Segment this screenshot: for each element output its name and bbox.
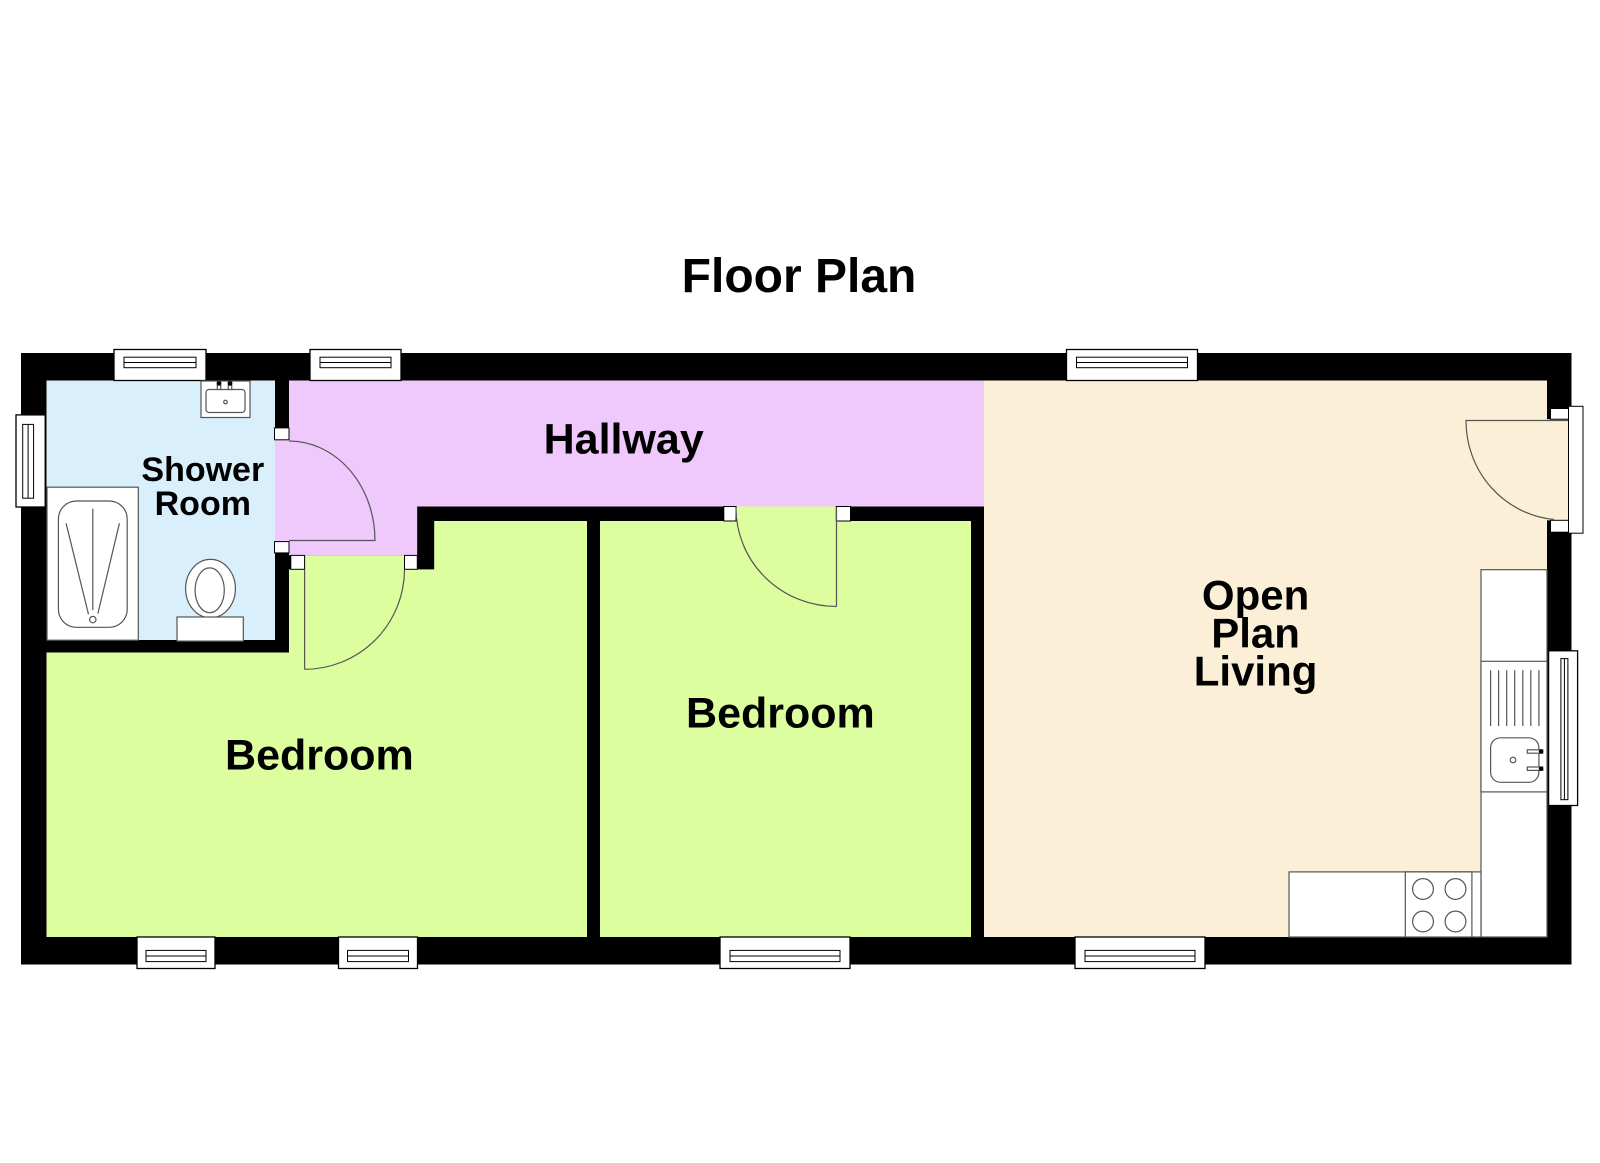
svg-text:Room: Room	[155, 485, 251, 523]
svg-text:Living: Living	[1194, 647, 1318, 694]
svg-text:Bedroom: Bedroom	[686, 690, 875, 738]
svg-text:Floor Plan: Floor Plan	[682, 250, 917, 303]
svg-text:Shower: Shower	[141, 451, 264, 489]
svg-text:Bedroom: Bedroom	[225, 732, 414, 780]
svg-text:Hallway: Hallway	[544, 416, 704, 464]
